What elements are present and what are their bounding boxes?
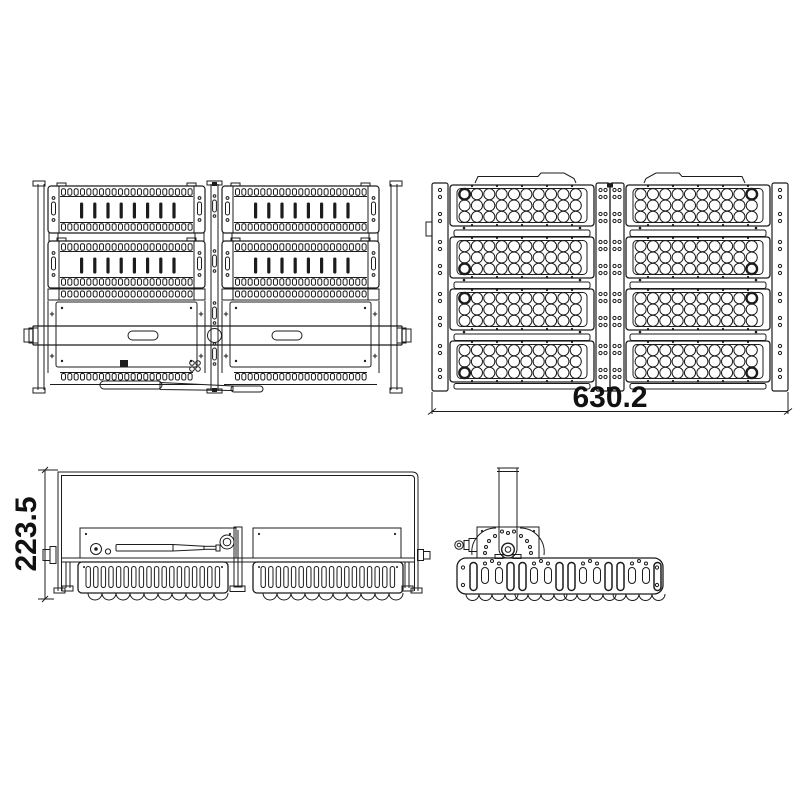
end-view: [455, 468, 665, 601]
serrated-strip: [222, 289, 379, 300]
heatsink-fin-module: [222, 183, 379, 233]
side-view: [38, 467, 430, 602]
cable-gland: [455, 539, 477, 552]
frame-rail-center: [610, 183, 624, 391]
vent-grille: [78, 562, 228, 593]
led-module: [626, 289, 770, 330]
led-module: [450, 185, 594, 226]
led-module: [626, 237, 770, 278]
front-view: [426, 173, 792, 415]
side-height-dimension-label: 223.5: [10, 496, 43, 571]
front-width-dimension-label: 630.2: [572, 381, 647, 414]
technical-drawing-canvas: 630.2 223.5: [0, 0, 800, 799]
carry-handle: [475, 173, 745, 183]
back-view: [24, 181, 411, 393]
frame-rail-right: [772, 183, 788, 391]
led-module: [450, 289, 594, 330]
serrated-strip: [48, 289, 205, 300]
center-divider: [207, 181, 222, 393]
heatsink-fin-module: [48, 238, 205, 288]
frame-rail-left: [432, 183, 448, 391]
frame-rail-center: [596, 183, 610, 391]
led-module: [626, 185, 770, 226]
pivot-joint: [472, 527, 544, 558]
led-module: [450, 237, 594, 278]
driver-cover-panel: [222, 301, 379, 385]
driver-cover-panel: [48, 301, 205, 385]
led-module: [626, 341, 770, 382]
heatsink-fin-module: [222, 238, 379, 288]
heatsink-fin-module: [48, 183, 205, 233]
mounting-pole: [497, 468, 519, 558]
vent-grille: [253, 562, 403, 593]
body-bar: [457, 555, 665, 601]
led-module: [450, 341, 594, 382]
antenna: [116, 545, 220, 552]
driver-panel-right: [253, 528, 401, 558]
driver-panel-left: [80, 528, 236, 558]
drawing-page: 630.2 223.5: [0, 0, 800, 799]
